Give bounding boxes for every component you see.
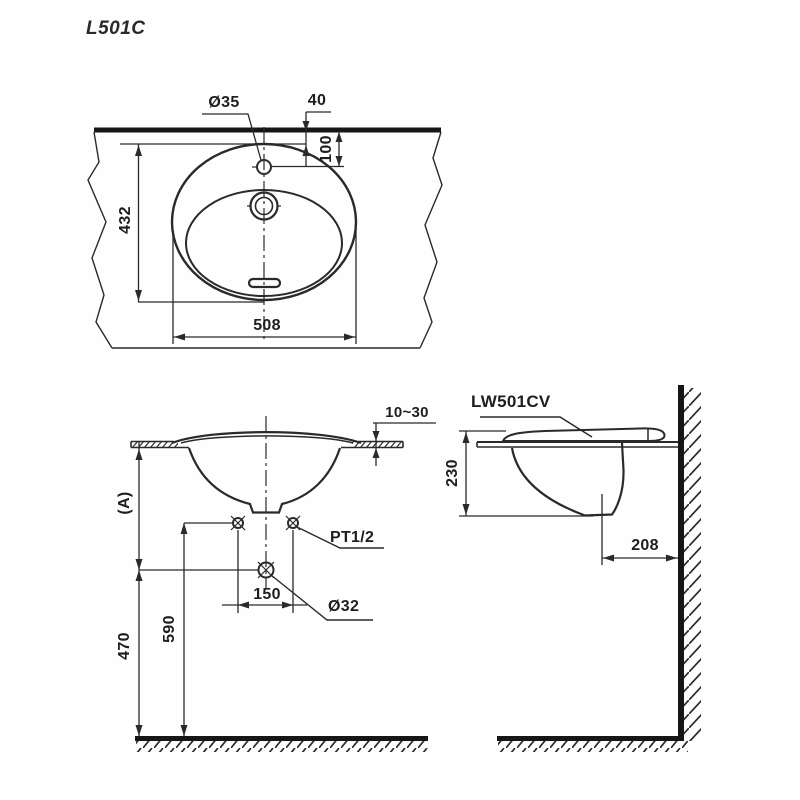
label-counter-height-ref: (A) [116, 478, 134, 528]
label-hole-offset-40: 40 [302, 92, 332, 110]
label-supply-thread: PT1/2 [330, 529, 388, 547]
leader-faucet-hole [202, 114, 261, 160]
dim-208 [602, 555, 678, 562]
dim-432 [120, 144, 306, 302]
bowl-profile [189, 448, 340, 513]
front-view [131, 416, 436, 752]
bowl-side-profile [512, 443, 624, 516]
label-width-508: 508 [242, 317, 292, 335]
floor-hatch-front [136, 741, 428, 752]
wall-hatch [684, 388, 701, 741]
rim-side-profile [503, 428, 665, 441]
drawing-linework [0, 0, 800, 800]
floor-hatch-side [498, 741, 688, 752]
side-view [459, 385, 701, 752]
drawing-title: L501C [86, 18, 146, 40]
dim-230 [459, 431, 593, 516]
break-line-left [88, 132, 112, 348]
label-depth-432: 432 [117, 195, 135, 245]
sink-rim-inner [181, 436, 353, 443]
label-bowl-depth-230: 230 [444, 448, 462, 498]
label-drain-dia: Ø32 [328, 598, 376, 616]
dim-height-chain [136, 441, 259, 736]
label-drain-to-wall-208: 208 [620, 537, 670, 555]
label-drain-height-470: 470 [116, 621, 134, 671]
label-hole-depth-100: 100 [318, 124, 336, 174]
technical-drawing-sheet: L501C Ø35 40 100 432 508 10~30 (A) PT1/2… [0, 0, 800, 800]
label-counter-thickness: 10~30 [376, 404, 438, 422]
leader-model-code [480, 417, 592, 437]
label-supply-height-590: 590 [161, 604, 179, 654]
label-faucet-hole-dia: Ø35 [199, 94, 249, 112]
top-view [88, 112, 442, 348]
break-line-right [420, 132, 442, 348]
label-model-code: LW501CV [471, 393, 551, 411]
label-supply-spacing-150: 150 [242, 586, 292, 604]
supply-point-left [231, 516, 245, 530]
